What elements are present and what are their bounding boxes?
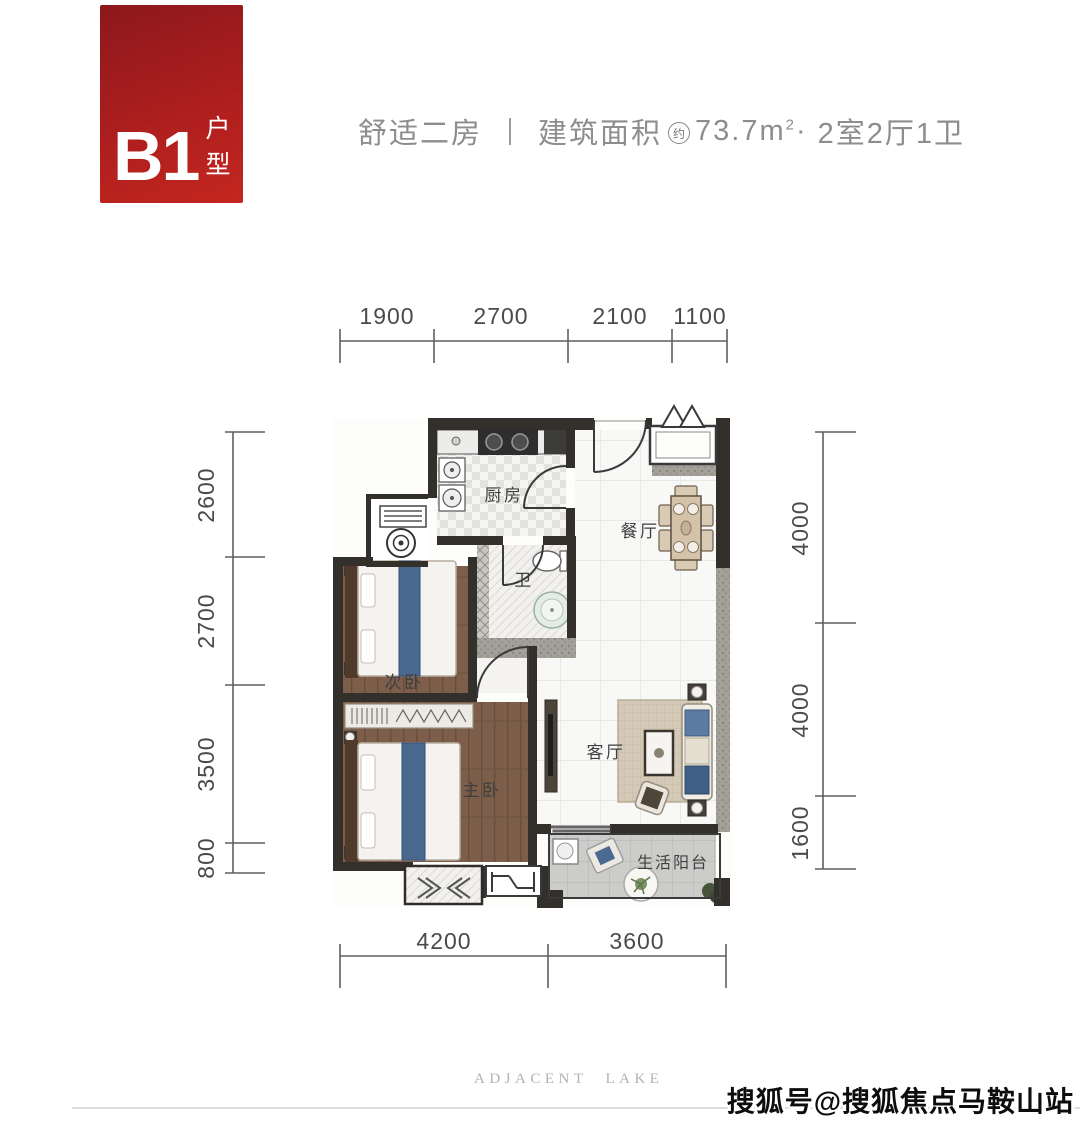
entry-planter-icon — [650, 406, 716, 464]
hall-floor — [477, 658, 528, 693]
floorplan-drawing: 厨房 卫 餐厅 次卧 主卧 客厅 生活阳台 — [0, 0, 1080, 1121]
bed-icon-master — [344, 731, 460, 862]
dim-right-3: 1600 — [787, 805, 813, 860]
tv-cabinet-icon — [545, 700, 557, 792]
brand-text: ADJACENT LAKE — [474, 1071, 663, 1088]
room-label-balcony: 生活阳台 — [637, 854, 709, 872]
dim-left-1: 2600 — [193, 467, 219, 522]
dim-top-3: 2100 — [592, 303, 647, 329]
balcony-table-icon — [624, 867, 658, 901]
dim-bottom-1: 4200 — [416, 928, 471, 954]
bay-window — [405, 866, 482, 904]
dim-left-2: 2700 — [193, 593, 219, 648]
bed-icon-bedroom2 — [344, 559, 456, 678]
room-label-bedroom2: 次卧 — [385, 673, 424, 692]
dim-top-2: 2700 — [473, 303, 528, 329]
dim-right-2: 4000 — [787, 682, 813, 737]
dim-left-4: 800 — [193, 837, 219, 878]
dim-left-3: 3500 — [193, 736, 219, 791]
room-label-kitchen: 厨房 — [485, 486, 524, 505]
sofa-icon — [682, 704, 712, 800]
watermark-text: 搜狐号@搜狐焦点马鞍山站 — [727, 1080, 1074, 1120]
toilet-icon — [533, 551, 567, 571]
coffee-table-icon — [645, 731, 673, 775]
bathtub-basin-icon — [534, 592, 570, 628]
wardrobe-icon — [345, 704, 473, 728]
window-icon — [486, 866, 541, 896]
balcony-basin-icon — [553, 839, 578, 864]
floorplan-page: B1 户型 舒适二房 建筑面积 约 73.7m2 · 2室2厅1卫 — [0, 0, 1080, 1121]
dim-bottom-2: 3600 — [609, 928, 664, 954]
dim-right-1: 4000 — [787, 500, 813, 555]
room-label-dining: 餐厅 — [621, 522, 660, 541]
dim-top-1: 1900 — [359, 303, 414, 329]
room-label-master: 主卧 — [463, 781, 502, 800]
room-label-bath: 卫 — [514, 571, 534, 590]
room-label-living: 客厅 — [587, 743, 626, 762]
dim-top-4: 1100 — [673, 303, 726, 329]
